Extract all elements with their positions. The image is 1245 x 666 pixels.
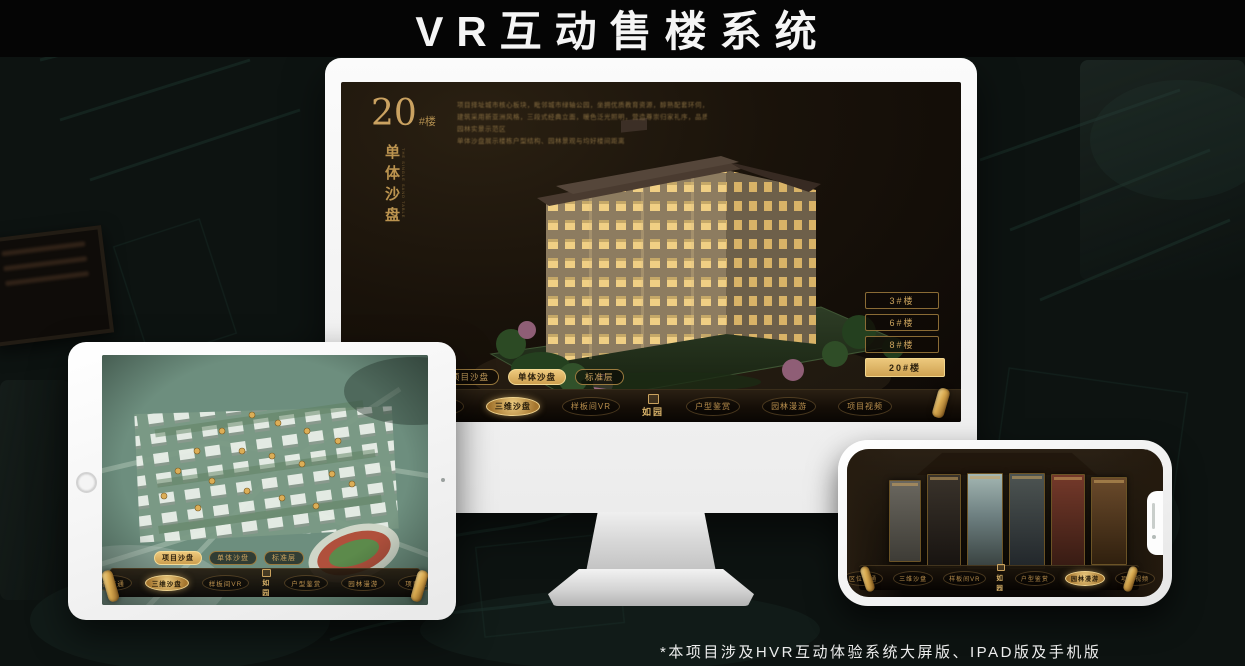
floor-button-3[interactable]: 3#楼 bbox=[865, 292, 939, 309]
project-description: 项目择址城市核心板块，毗邻城市绿轴公园，坐拥优质教育资源，醇熟配套环伺，尽享都会… bbox=[457, 100, 707, 148]
phone-nav-item-floorplans[interactable]: 户型鉴赏 bbox=[1015, 571, 1055, 586]
phone-project-logo[interactable]: 如园 bbox=[996, 564, 1005, 592]
tablet-nav-item-floorplans[interactable]: 户型鉴赏 bbox=[284, 575, 328, 591]
page-title: VR互动售楼系统 bbox=[415, 0, 829, 59]
nav-item-3d-sandtable[interactable]: 三维沙盘 bbox=[486, 397, 540, 416]
tablet-navbar: 区位交通 三维沙盘 样板间VR 如园 户型鉴赏 园林漫游 项目视频 bbox=[110, 568, 420, 597]
nav-item-showroom-vr[interactable]: 样板间VR bbox=[562, 397, 620, 416]
headline-caption-en: THE SINGLE SAND TABLE bbox=[401, 148, 406, 218]
phone-camera-icon bbox=[1152, 535, 1156, 539]
logo-seal-icon bbox=[262, 569, 271, 577]
nav-item-floorplans[interactable]: 户型鉴赏 bbox=[686, 397, 740, 416]
headline-vertical-label: 单体沙盘 bbox=[381, 144, 402, 228]
gallery-panel[interactable] bbox=[1009, 473, 1045, 569]
project-logo[interactable]: 如园 bbox=[642, 394, 664, 418]
floor-button-8[interactable]: 8#楼 bbox=[865, 336, 939, 353]
tablet-nav-item-garden-tour[interactable]: 园林漫游 bbox=[341, 575, 385, 591]
floor-button-group: 3#楼 6#楼 8#楼 20#楼 bbox=[865, 292, 945, 377]
phone-device: 区位交通 三维沙盘 样板间VR 如园 户型鉴赏 园林漫游 项目视频 bbox=[838, 440, 1172, 606]
tablet-home-button[interactable] bbox=[76, 472, 97, 493]
tablet-subtab-project-sandtable[interactable]: 项目沙盘 bbox=[154, 551, 202, 565]
gallery-panel[interactable] bbox=[927, 474, 961, 568]
building-number-suffix: #楼 bbox=[419, 116, 436, 128]
tablet-project-logo[interactable]: 如园 bbox=[262, 569, 271, 598]
gallery-panel[interactable] bbox=[967, 473, 1003, 569]
nav-item-project-video[interactable]: 项目视频 bbox=[838, 397, 892, 416]
phone-screen: 区位交通 三维沙盘 样板间VR 如园 户型鉴赏 园林漫游 项目视频 bbox=[847, 449, 1163, 597]
gallery-panel[interactable] bbox=[1051, 474, 1085, 568]
logo-seal-icon bbox=[997, 564, 1005, 571]
subtab-single-sandtable[interactable]: 单体沙盘 bbox=[508, 369, 566, 385]
background-plaque bbox=[0, 225, 114, 347]
tablet-nav-item-3d-sandtable[interactable]: 三维沙盘 bbox=[145, 575, 189, 591]
logo-text: 如园 bbox=[996, 572, 1005, 592]
tablet-screen: 项目沙盘 单体沙盘 标准层 区位交通 三维沙盘 样板间VR 如园 户型鉴赏 园林… bbox=[102, 355, 428, 605]
phone-navbar: 区位交通 三维沙盘 样板间VR 如园 户型鉴赏 园林漫游 项目视频 bbox=[859, 565, 1139, 590]
background-photo-fragment bbox=[0, 380, 70, 600]
description-line: 项目择址城市核心板块，毗邻城市绿轴公园，坐拥优质教育资源，醇熟配套环伺，尽享都会… bbox=[457, 100, 707, 112]
gallery-panel[interactable] bbox=[1091, 477, 1127, 565]
subtab-standard-floor[interactable]: 标准层 bbox=[575, 369, 624, 385]
logo-seal-icon bbox=[648, 394, 659, 404]
phone-notch bbox=[1147, 491, 1163, 555]
tablet-camera-icon bbox=[441, 478, 445, 482]
tablet-subtab-single-sandtable[interactable]: 单体沙盘 bbox=[209, 551, 257, 565]
footnote-text: *本项目涉及HVR互动体验系统大屏版、IPAD版及手机版 bbox=[660, 641, 1101, 662]
building-number: 20 bbox=[371, 93, 417, 134]
scene-gallery bbox=[889, 473, 1127, 569]
floor-button-20[interactable]: 20#楼 bbox=[865, 358, 945, 377]
sandtable-subtabs: 项目沙盘 单体沙盘 标准层 bbox=[441, 369, 624, 385]
logo-text: 如园 bbox=[262, 578, 271, 598]
background-photo-fragment bbox=[1080, 60, 1245, 280]
nav-item-garden-tour[interactable]: 园林漫游 bbox=[762, 397, 816, 416]
tablet-subtabs: 项目沙盘 单体沙盘 标准层 bbox=[154, 551, 304, 565]
floor-button-6[interactable]: 6#楼 bbox=[865, 314, 939, 331]
logo-text: 如园 bbox=[642, 405, 664, 418]
title-bar: VR互动售楼系统 bbox=[0, 0, 1245, 57]
description-line: 建筑采用新亚洲风格，三段式经典立面，暖色泛光照明，营造尊崇归家礼序，品质细节处处… bbox=[457, 112, 707, 124]
phone-nav-item-showroom-vr[interactable]: 样板间VR bbox=[943, 571, 986, 586]
screen-headline: 20#楼 bbox=[371, 96, 436, 132]
tablet-subtab-standard-floor[interactable]: 标准层 bbox=[264, 551, 304, 565]
gallery-panel[interactable] bbox=[889, 480, 921, 562]
phone-nav-item-garden-tour[interactable]: 园林漫游 bbox=[1065, 571, 1105, 586]
phone-speaker-icon bbox=[1152, 503, 1155, 529]
description-line: 单体沙盘展示楼栋户型结构、园林景观与均好楼间距离 bbox=[457, 136, 707, 148]
phone-nav-item-3d-sandtable[interactable]: 三维沙盘 bbox=[893, 571, 933, 586]
monitor-stand-neck bbox=[586, 512, 716, 572]
pavilion-roof-silhouette bbox=[917, 449, 1097, 475]
tablet-device: 项目沙盘 单体沙盘 标准层 区位交通 三维沙盘 样板间VR 如园 户型鉴赏 园林… bbox=[68, 342, 456, 620]
tablet-nav-item-showroom-vr[interactable]: 样板间VR bbox=[202, 575, 250, 591]
monitor-stand-base bbox=[548, 569, 754, 606]
description-line: 园林实景示范区 bbox=[457, 124, 707, 136]
